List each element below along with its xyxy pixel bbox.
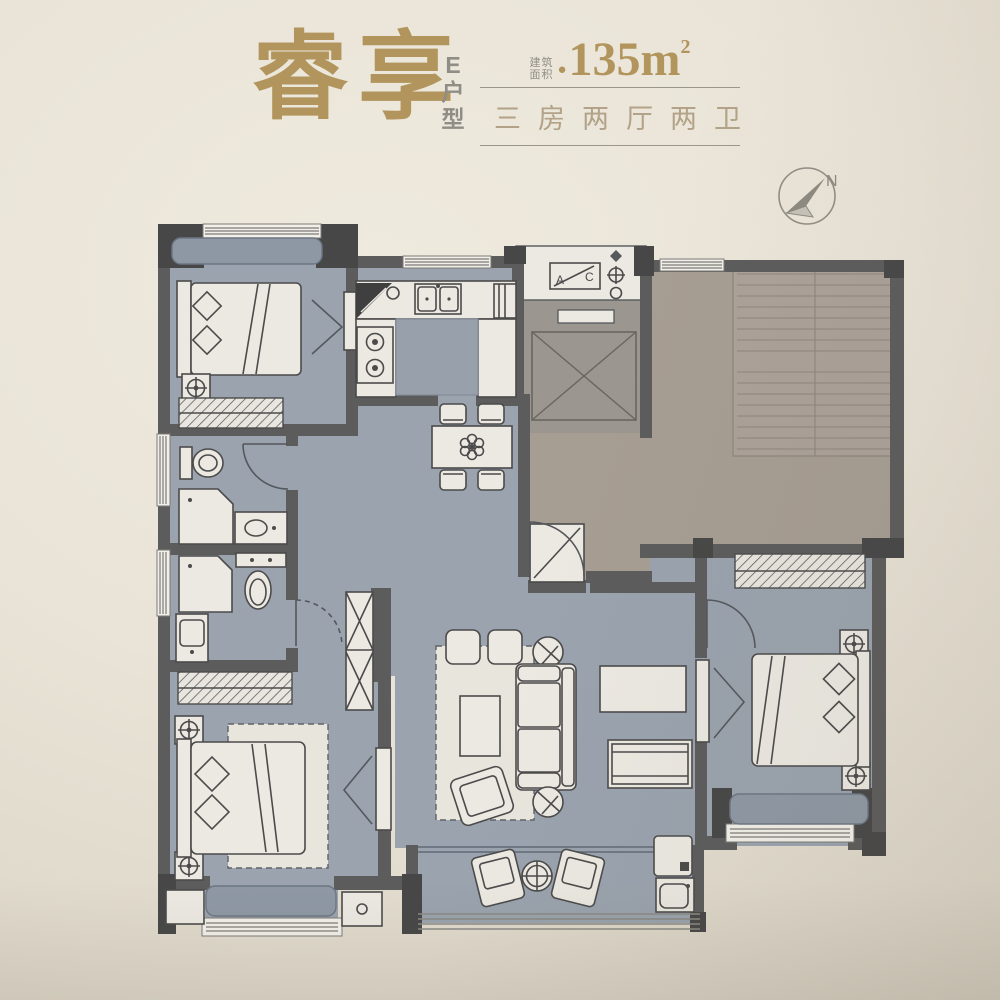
hall-storage-cabinet xyxy=(346,592,373,710)
bed-double xyxy=(177,739,305,857)
side-table-round xyxy=(533,787,563,817)
elevator xyxy=(518,298,646,433)
toilet xyxy=(245,571,271,609)
round-table xyxy=(522,861,552,891)
washing-machine xyxy=(654,836,692,876)
utility-shaft-room: A C xyxy=(516,246,646,300)
ottoman xyxy=(446,630,480,664)
side-table-round xyxy=(533,637,563,667)
counter xyxy=(236,553,286,567)
fridge xyxy=(494,284,516,318)
bed-double xyxy=(752,651,870,767)
stairwell xyxy=(733,268,896,456)
door-panel xyxy=(376,748,391,830)
shower xyxy=(179,489,233,544)
compass-north-label: N xyxy=(826,173,838,190)
coffee-table xyxy=(460,696,500,756)
bay-window-seat xyxy=(172,238,322,264)
sink-cabinet xyxy=(176,614,208,662)
laundry-sink xyxy=(656,878,694,912)
floorplan-photo-page: 睿享 E 户 型 建筑 面积 ● 135m 2 三房两厅两卫 xyxy=(0,0,1000,1000)
toilet xyxy=(180,447,223,479)
drain-platform xyxy=(342,892,382,926)
bench-daybed xyxy=(608,740,692,788)
stove xyxy=(357,327,393,383)
ottoman xyxy=(488,630,522,664)
bay-window-seat xyxy=(730,794,868,824)
shower xyxy=(179,556,232,612)
shaft-label-a: A xyxy=(556,273,564,287)
corner-platform xyxy=(166,890,204,924)
door-panel xyxy=(696,660,709,742)
entry xyxy=(530,522,584,582)
shaft-label-c: C xyxy=(585,270,594,284)
tv-cabinet xyxy=(600,666,686,712)
sofa xyxy=(516,664,576,790)
bay-window-seat xyxy=(206,886,336,916)
counter-right xyxy=(478,319,516,397)
kitchen-sink xyxy=(415,284,461,314)
vanity-sink xyxy=(235,512,287,544)
bed-double xyxy=(177,281,301,377)
compass: N xyxy=(779,168,838,224)
kitchen xyxy=(356,281,516,397)
floorplan-drawing: A C xyxy=(0,0,1000,1000)
